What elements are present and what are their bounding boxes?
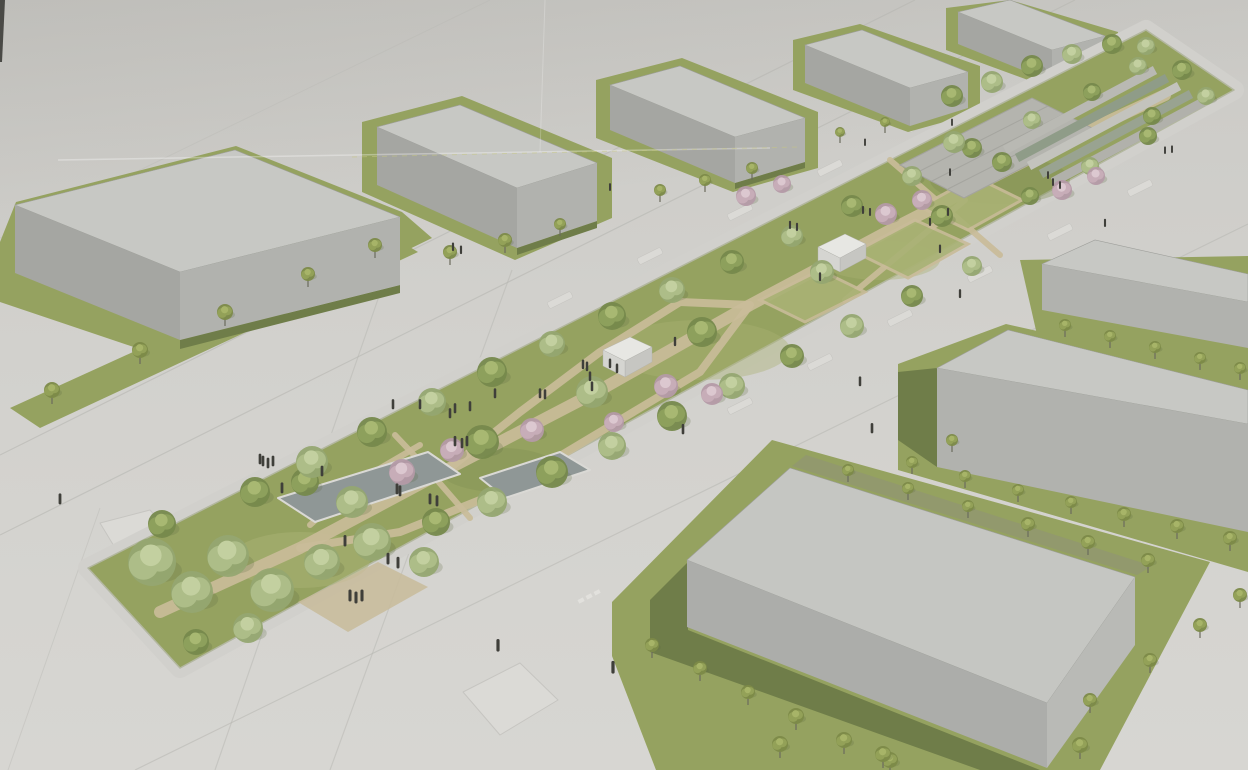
architectural-rendering-photo (0, 0, 1248, 770)
rendering-canvas (0, 0, 1248, 770)
